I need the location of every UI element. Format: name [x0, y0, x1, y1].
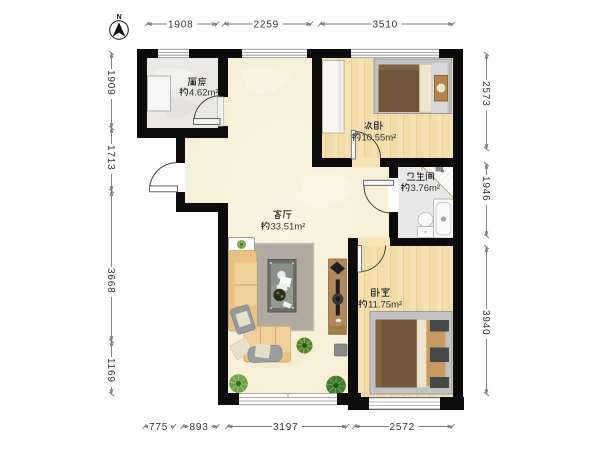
- svg-text:1909: 1909: [105, 70, 116, 95]
- svg-text:1908: 1908: [168, 20, 193, 31]
- svg-text:1946: 1946: [480, 176, 491, 201]
- svg-text:1169: 1169: [105, 358, 116, 383]
- svg-text:3197: 3197: [273, 422, 298, 433]
- svg-text:4.62m²: 4.62m²: [189, 87, 219, 98]
- svg-text:775: 775: [149, 422, 168, 433]
- svg-text:893: 893: [190, 422, 209, 433]
- svg-text:11.75m²: 11.75m²: [368, 299, 402, 310]
- svg-text:33.51m²: 33.51m²: [271, 221, 306, 232]
- svg-text:3940: 3940: [480, 310, 491, 335]
- svg-text:1713: 1713: [105, 145, 116, 170]
- svg-text:2572: 2572: [390, 422, 415, 433]
- svg-text:10.55m²: 10.55m²: [362, 132, 397, 143]
- svg-text:3510: 3510: [373, 20, 398, 31]
- svg-text:2573: 2573: [480, 81, 491, 106]
- svg-text:2259: 2259: [254, 20, 279, 31]
- svg-text:3.76m²: 3.76m²: [411, 183, 441, 194]
- svg-text:N: N: [117, 14, 122, 21]
- svg-text:3668: 3668: [105, 268, 116, 293]
